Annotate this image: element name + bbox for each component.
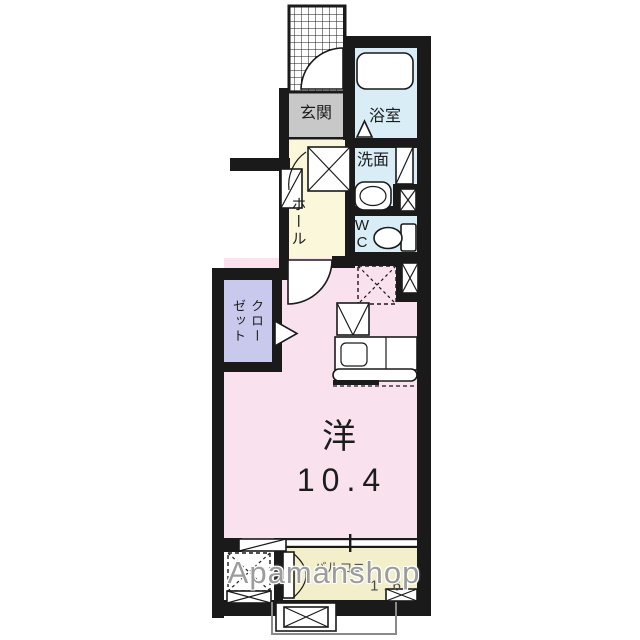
washroom-label: 洗面 [357,152,389,170]
watermark-text: Apamanshop [228,555,421,591]
hall-label: ホール [289,197,306,248]
washbasin [355,182,391,210]
closet-label: クローゼット [229,295,265,347]
floorplan-drawing [0,0,640,640]
floorplan-canvas: 玄関 浴室 洗面 W C ホール クローゼット 洋 10.4 バルコニー 1.6… [0,0,640,640]
kitchen-counter [333,337,417,386]
main-room-label: 洋 [322,418,356,456]
small-window [239,539,286,551]
vent-grill-left [227,591,271,603]
entrance-label: 玄関 [300,105,332,123]
bathroom-label: 浴室 [369,108,401,126]
main-room-size: 10.4 [297,463,387,499]
window-tick [349,534,351,552]
kitchen-range [337,303,369,335]
bathtub [357,53,413,89]
washroom-door [396,147,413,184]
vent-box-icon [400,189,416,211]
entrance-step-line [289,137,345,140]
toilet-label: W C [355,217,369,252]
pipe-space-box [402,263,418,293]
